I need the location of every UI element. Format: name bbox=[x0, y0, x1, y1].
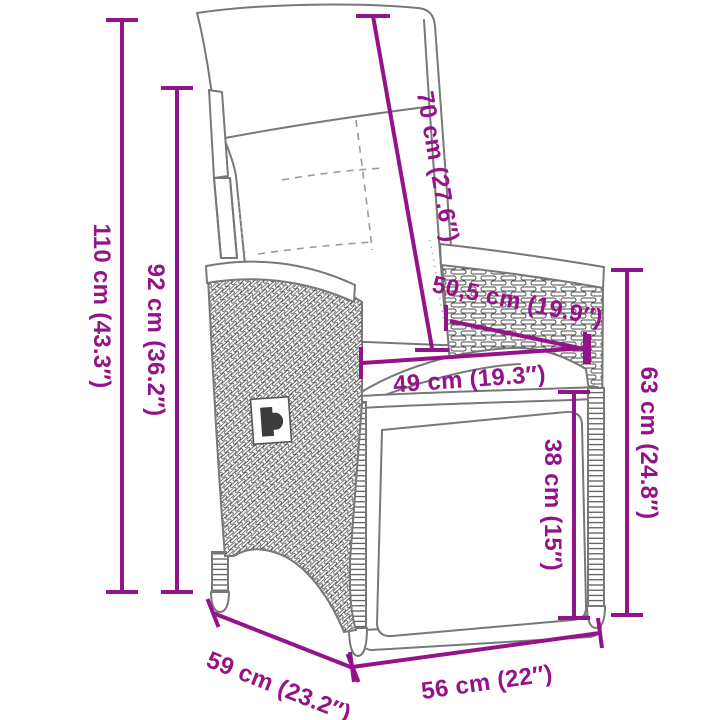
dimension-backrest-height: 92 cm (36.2″) bbox=[142, 88, 193, 592]
front-right-post bbox=[588, 388, 604, 608]
left-panel-weave bbox=[208, 274, 362, 632]
dimension-label: 110 cm (43.3″) bbox=[88, 223, 115, 388]
dimension-base-depth: 59 cm (23.2″) bbox=[203, 599, 359, 720]
dimension-label: 63 cm (24.8″) bbox=[635, 367, 662, 520]
dimension-label: 56 cm (22″) bbox=[420, 660, 555, 705]
dimension-label: 38 cm (15″) bbox=[539, 439, 566, 571]
dimension-total-height: 110 cm (43.3″) bbox=[88, 20, 138, 592]
product-dimension-diagram: 110 cm (43.3″) 92 cm (36.2″) 70 cm (27.6… bbox=[0, 0, 720, 720]
back-left-leg bbox=[212, 552, 228, 594]
back-left-foot bbox=[211, 592, 229, 612]
recline-handle bbox=[251, 397, 292, 445]
dimension-diagram-canvas: 110 cm (43.3″) 92 cm (36.2″) 70 cm (27.6… bbox=[0, 0, 720, 720]
dimension-label: 92 cm (36.2″) bbox=[142, 264, 169, 417]
dimension-side-panel-height: 63 cm (24.8″) bbox=[611, 270, 662, 615]
left-armrest-panel bbox=[206, 262, 362, 632]
dimension-label: 59 cm (23.2″) bbox=[203, 646, 355, 720]
